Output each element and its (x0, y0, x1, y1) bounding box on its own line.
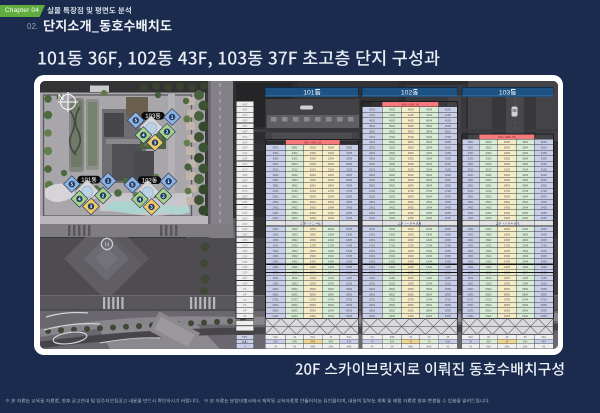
svg-text:2503: 2503 (503, 199, 509, 203)
svg-text:3204: 3204 (522, 161, 528, 165)
svg-text:1605: 1605 (540, 248, 546, 252)
svg-text:3503: 3503 (407, 145, 413, 149)
svg-text:2505: 2505 (540, 199, 546, 203)
svg-text:4005: 4005 (444, 118, 450, 122)
svg-text:2501: 2501 (467, 199, 473, 203)
svg-text:3104: 3104 (426, 167, 432, 171)
svg-text:1101: 1101 (369, 275, 375, 279)
svg-text:1702: 1702 (291, 243, 297, 247)
svg-text:3303: 3303 (309, 156, 315, 160)
svg-text:1603: 1603 (309, 248, 315, 252)
svg-text:2002: 2002 (389, 227, 395, 231)
svg-text:3403: 3403 (503, 151, 509, 155)
svg-text:2601: 2601 (272, 194, 278, 198)
svg-text:0405: 0405 (540, 313, 546, 317)
svg-text:27F: 27F (242, 189, 247, 193)
svg-text:3304: 3304 (426, 156, 432, 160)
svg-text:0602: 0602 (485, 303, 491, 307)
svg-text:2401: 2401 (272, 205, 278, 209)
svg-text:2905: 2905 (346, 178, 352, 182)
svg-text:1901: 1901 (467, 232, 473, 236)
svg-text:3103: 3103 (309, 167, 315, 171)
svg-text:2701: 2701 (467, 189, 473, 193)
svg-text:1005: 1005 (444, 281, 450, 285)
svg-text:3402: 3402 (389, 151, 395, 155)
svg-text:0903: 0903 (309, 286, 315, 290)
svg-text:2404: 2404 (522, 205, 528, 209)
svg-text:4204: 4204 (426, 107, 432, 111)
svg-text:3103: 3103 (503, 167, 509, 171)
svg-text:0604: 0604 (426, 303, 432, 307)
svg-text:0805: 0805 (444, 292, 450, 296)
svg-text:0803: 0803 (503, 292, 509, 296)
svg-text:2603: 2603 (503, 194, 509, 198)
svg-text:1704: 1704 (522, 243, 528, 247)
svg-text:1502: 1502 (485, 254, 491, 258)
svg-text:0402: 0402 (485, 313, 491, 317)
svg-text:3001: 3001 (272, 172, 278, 176)
svg-text:0805: 0805 (346, 292, 352, 296)
svg-text:1501: 1501 (369, 254, 375, 258)
svg-text:84B: 84B (310, 339, 315, 343)
svg-text:2803: 2803 (309, 183, 315, 187)
svg-text:1601: 1601 (369, 248, 375, 252)
svg-text:84B: 84B (328, 339, 333, 343)
svg-text:1802: 1802 (291, 237, 297, 241)
svg-text:3303: 3303 (503, 156, 509, 160)
svg-text:1804: 1804 (522, 237, 528, 241)
svg-text:0804: 0804 (522, 292, 528, 296)
svg-text:3403: 3403 (309, 151, 315, 155)
svg-text:1004: 1004 (522, 281, 528, 285)
svg-text:2705: 2705 (444, 189, 450, 193)
svg-text:1403: 1403 (407, 259, 413, 263)
svg-text:2305: 2305 (540, 210, 546, 214)
svg-text:0902: 0902 (485, 286, 491, 290)
svg-text:3005: 3005 (444, 172, 450, 176)
svg-text:2205: 2205 (444, 216, 450, 220)
svg-text:1705: 1705 (444, 243, 450, 247)
svg-text:3603: 3603 (407, 140, 413, 144)
svg-text:2805: 2805 (540, 183, 546, 187)
svg-text:3504: 3504 (522, 145, 528, 149)
svg-text:3003: 3003 (309, 172, 315, 176)
svg-text:1603: 1603 (503, 248, 509, 252)
svg-text:3302: 3302 (389, 156, 395, 160)
svg-text:2403: 2403 (407, 205, 413, 209)
svg-text:0403: 0403 (503, 313, 509, 317)
svg-text:2005: 2005 (540, 227, 546, 231)
svg-text:3503: 3503 (503, 145, 509, 149)
svg-text:3402: 3402 (485, 151, 491, 155)
svg-text:1902: 1902 (485, 232, 491, 236)
svg-text:0404: 0404 (522, 313, 528, 317)
svg-text:1105: 1105 (346, 275, 352, 279)
svg-text:1703: 1703 (503, 243, 509, 247)
svg-text:2205: 2205 (346, 216, 352, 220)
svg-text:0801: 0801 (272, 292, 278, 296)
svg-text:3205: 3205 (540, 161, 546, 165)
svg-text:2301: 2301 (272, 210, 278, 214)
svg-text:0801: 0801 (369, 292, 375, 296)
svg-text:4201: 4201 (369, 107, 375, 111)
svg-text:2404: 2404 (426, 205, 432, 209)
svg-text:17F: 17F (242, 243, 247, 247)
svg-text:1405: 1405 (346, 259, 352, 263)
svg-text:0601: 0601 (369, 303, 375, 307)
svg-text:3102: 3102 (291, 167, 297, 171)
svg-text:3302: 3302 (291, 156, 297, 160)
svg-text:0904: 0904 (522, 286, 528, 290)
svg-text:2502: 2502 (291, 199, 297, 203)
svg-text:2501: 2501 (272, 199, 278, 203)
svg-text:1602: 1602 (291, 248, 297, 252)
svg-text:3605: 3605 (540, 140, 546, 144)
svg-text:2501: 2501 (369, 199, 375, 203)
svg-text:3401: 3401 (369, 151, 375, 155)
svg-text:1502: 1502 (389, 254, 395, 258)
svg-text:0401: 0401 (467, 313, 473, 317)
svg-text:84A: 84A (273, 335, 278, 339)
svg-text:3202: 3202 (389, 161, 395, 165)
svg-text:2405: 2405 (444, 205, 450, 209)
svg-text:22F: 22F (242, 216, 247, 220)
svg-text:1304: 1304 (426, 265, 432, 269)
svg-text:13F: 13F (242, 265, 247, 269)
svg-text:1003: 1003 (503, 281, 509, 285)
svg-text:0605: 0605 (444, 303, 450, 307)
svg-text:1703: 1703 (407, 243, 413, 247)
svg-text:3403: 3403 (407, 151, 413, 155)
svg-text:2705: 2705 (540, 189, 546, 193)
svg-text:3801: 3801 (369, 129, 375, 133)
svg-text:28F: 28F (242, 183, 247, 187)
svg-text:3503: 3503 (309, 145, 315, 149)
svg-text:0504: 0504 (522, 308, 528, 312)
svg-text:2805: 2805 (444, 183, 450, 187)
svg-text:33F: 33F (242, 156, 247, 160)
svg-text:12F: 12F (242, 270, 247, 274)
svg-text:1904: 1904 (426, 232, 432, 236)
svg-text:1703: 1703 (309, 243, 315, 247)
svg-text:2703: 2703 (309, 189, 315, 193)
svg-text:2202: 2202 (291, 216, 297, 220)
svg-text:2203: 2203 (309, 216, 315, 220)
svg-text:2404: 2404 (327, 205, 333, 209)
svg-text:1804: 1804 (426, 237, 432, 241)
svg-text:2503: 2503 (309, 199, 315, 203)
svg-text:3004: 3004 (522, 172, 528, 176)
svg-text:0602: 0602 (389, 303, 395, 307)
svg-text:2401: 2401 (467, 205, 473, 209)
svg-text:2204: 2204 (426, 216, 432, 220)
svg-text:3005: 3005 (346, 172, 352, 176)
svg-text:0902: 0902 (389, 286, 395, 290)
svg-text:1905: 1905 (444, 232, 450, 236)
svg-text:1805: 1805 (540, 237, 546, 241)
svg-text:2305: 2305 (444, 210, 450, 214)
svg-text:3101: 3101 (467, 167, 473, 171)
svg-text:4101: 4101 (369, 113, 375, 117)
svg-text:3905: 3905 (444, 123, 450, 127)
svg-text:1702: 1702 (389, 243, 395, 247)
svg-text:3601: 3601 (467, 140, 473, 144)
svg-text:3203: 3203 (309, 161, 315, 165)
svg-text:1802: 1802 (485, 237, 491, 241)
svg-text:2502: 2502 (389, 199, 395, 203)
svg-text:1605: 1605 (346, 248, 352, 252)
svg-text:1503: 1503 (407, 254, 413, 258)
svg-text:59A: 59A (328, 344, 333, 348)
svg-text:43F: 43F (242, 102, 247, 106)
svg-text:3304: 3304 (522, 156, 528, 160)
svg-text:3901: 3901 (369, 123, 375, 127)
svg-text:3301: 3301 (272, 156, 278, 160)
svg-text:1503: 1503 (503, 254, 509, 258)
svg-text:1804: 1804 (327, 237, 333, 241)
svg-text:3902: 3902 (389, 123, 395, 127)
svg-text:3104: 3104 (522, 167, 528, 171)
svg-text:0504: 0504 (426, 308, 432, 312)
svg-text:3505: 3505 (540, 145, 546, 149)
svg-text:4202: 4202 (389, 107, 395, 111)
svg-text:1401: 1401 (369, 259, 375, 263)
svg-text:1701: 1701 (467, 243, 473, 247)
svg-text:2805: 2805 (346, 183, 352, 187)
svg-text:1002: 1002 (389, 281, 395, 285)
svg-text:1004: 1004 (426, 281, 432, 285)
svg-text:3404: 3404 (327, 151, 333, 155)
svg-text:2303: 2303 (407, 210, 413, 214)
svg-text:1103: 1103 (407, 275, 413, 279)
svg-text:1104: 1104 (328, 275, 334, 279)
svg-text:2605: 2605 (444, 194, 450, 198)
svg-text:3103: 3103 (407, 167, 413, 171)
svg-text:0503: 0503 (407, 308, 413, 312)
svg-text:102: 102 (400, 89, 412, 96)
svg-text:4203: 4203 (407, 107, 413, 111)
svg-text:4001: 4001 (369, 118, 375, 122)
svg-text:2901: 2901 (272, 178, 278, 182)
svg-text:2905: 2905 (444, 178, 450, 182)
svg-text:0501: 0501 (272, 308, 278, 312)
svg-text:2502: 2502 (485, 199, 491, 203)
svg-text:2302: 2302 (485, 210, 491, 214)
svg-text:0402: 0402 (389, 313, 395, 317)
svg-text:3401: 3401 (272, 151, 278, 155)
svg-text:3703: 3703 (407, 134, 413, 138)
svg-text:15F: 15F (242, 254, 247, 258)
svg-text:1104: 1104 (426, 275, 432, 279)
svg-text:1705: 1705 (346, 243, 352, 247)
svg-text:1503: 1503 (309, 254, 315, 258)
svg-text:1005: 1005 (540, 281, 546, 285)
svg-text:3401: 3401 (467, 151, 473, 155)
svg-text:1801: 1801 (369, 237, 375, 241)
svg-text:1302: 1302 (485, 265, 491, 269)
svg-text:2603: 2603 (407, 194, 413, 198)
svg-text:31F: 31F (242, 167, 247, 171)
svg-text:3202: 3202 (291, 161, 297, 165)
svg-text:1505: 1505 (540, 254, 546, 258)
svg-text:3201: 3201 (272, 161, 278, 165)
svg-text:39F: 39F (242, 124, 247, 128)
svg-text:0505: 0505 (444, 308, 450, 312)
svg-text:30F: 30F (242, 172, 247, 176)
svg-text:1303: 1303 (503, 265, 509, 269)
svg-text:3203: 3203 (407, 161, 413, 165)
svg-text:2004: 2004 (426, 227, 432, 231)
svg-text:1002: 1002 (485, 281, 491, 285)
svg-text:3505: 3505 (346, 145, 352, 149)
svg-text:59A: 59A (504, 344, 509, 348)
svg-text:1904: 1904 (327, 232, 333, 236)
svg-text:2604: 2604 (426, 194, 432, 198)
svg-text:2302: 2302 (291, 210, 297, 214)
svg-text:3201: 3201 (369, 161, 375, 165)
svg-text:2903: 2903 (407, 178, 413, 182)
svg-text:2803: 2803 (407, 183, 413, 187)
svg-text:3802: 3802 (389, 129, 395, 133)
svg-text:2604: 2604 (327, 194, 333, 198)
svg-text:2901: 2901 (467, 178, 473, 182)
svg-text:84B: 84B (346, 344, 351, 348)
svg-text:1801: 1801 (467, 237, 473, 241)
svg-text:2601: 2601 (467, 194, 473, 198)
svg-text:2004: 2004 (522, 227, 528, 231)
svg-text:2402: 2402 (485, 205, 491, 209)
svg-text:2002: 2002 (291, 227, 297, 231)
svg-text:1101: 1101 (272, 275, 278, 279)
svg-text:0403: 0403 (407, 313, 413, 317)
svg-text:0705: 0705 (540, 297, 546, 301)
svg-text:1901: 1901 (272, 232, 278, 236)
svg-text:1702: 1702 (485, 243, 491, 247)
svg-text:1504: 1504 (426, 254, 432, 258)
svg-text:84A: 84A (310, 335, 315, 339)
svg-text:20F: 20F (242, 227, 247, 231)
svg-text:3002: 3002 (485, 172, 491, 176)
svg-text:1305: 1305 (346, 265, 352, 269)
svg-text:2003: 2003 (503, 227, 509, 231)
svg-text:2602: 2602 (389, 194, 395, 198)
svg-text:1902: 1902 (389, 232, 395, 236)
svg-text:1601: 1601 (272, 248, 278, 252)
svg-text:0905: 0905 (444, 286, 450, 290)
svg-text:41F: 41F (242, 113, 247, 117)
svg-text:29F: 29F (242, 178, 247, 182)
svg-text:1701: 1701 (272, 243, 278, 247)
svg-text:3105: 3105 (346, 167, 352, 171)
svg-text:1605: 1605 (444, 248, 450, 252)
svg-text:1803: 1803 (503, 237, 509, 241)
svg-text:1302: 1302 (291, 265, 297, 269)
svg-text:2201: 2201 (272, 216, 278, 220)
svg-text:3701: 3701 (369, 134, 375, 138)
svg-text:2505: 2505 (346, 199, 352, 203)
svg-text:1802: 1802 (389, 237, 395, 241)
svg-text:3303: 3303 (407, 156, 413, 160)
svg-text:2704: 2704 (327, 189, 333, 193)
svg-text:1305: 1305 (444, 265, 450, 269)
svg-text:0804: 0804 (327, 292, 333, 296)
svg-text:2905: 2905 (540, 178, 546, 182)
svg-text:1301: 1301 (272, 265, 278, 269)
svg-text:1105: 1105 (445, 275, 451, 279)
svg-text:3803: 3803 (407, 129, 413, 133)
svg-text:2902: 2902 (389, 178, 395, 182)
svg-text:1304: 1304 (327, 265, 333, 269)
svg-text:2504: 2504 (426, 199, 432, 203)
svg-text:1401: 1401 (272, 259, 278, 263)
svg-text:0903: 0903 (503, 286, 509, 290)
svg-text:3805: 3805 (444, 129, 450, 133)
svg-text:1402: 1402 (291, 259, 297, 263)
svg-text:18F: 18F (242, 238, 247, 242)
svg-text:2005: 2005 (346, 227, 352, 231)
svg-text:0604: 0604 (327, 303, 333, 307)
svg-text:2904: 2904 (327, 178, 333, 182)
svg-text:3201: 3201 (467, 161, 473, 165)
svg-text:1301: 1301 (369, 265, 375, 269)
svg-text:1601: 1601 (467, 248, 473, 252)
svg-text:2904: 2904 (426, 178, 432, 182)
svg-text:1803: 1803 (407, 237, 413, 241)
svg-text:4105: 4105 (444, 113, 450, 117)
svg-text:1504: 1504 (522, 254, 528, 258)
svg-text:0701: 0701 (369, 297, 375, 301)
svg-text:0805: 0805 (540, 292, 546, 296)
svg-text:2504: 2504 (522, 199, 528, 203)
svg-text:4003: 4003 (407, 118, 413, 122)
svg-text:25F: 25F (242, 200, 247, 204)
svg-text:3602: 3602 (485, 140, 491, 144)
svg-text:2203: 2203 (407, 216, 413, 220)
svg-text:2901: 2901 (369, 178, 375, 182)
svg-text:1903: 1903 (503, 232, 509, 236)
svg-text:2405: 2405 (346, 205, 352, 209)
svg-text:3004: 3004 (327, 172, 333, 176)
svg-text:2701: 2701 (272, 189, 278, 193)
svg-text:0904: 0904 (426, 286, 432, 290)
svg-text:26F: 26F (242, 194, 247, 198)
svg-text:3301: 3301 (369, 156, 375, 160)
svg-text:0705: 0705 (346, 297, 352, 301)
svg-text:0802: 0802 (389, 292, 395, 296)
svg-text:2702: 2702 (485, 189, 491, 193)
svg-text:1401: 1401 (467, 259, 473, 263)
svg-text:9F: 9F (242, 286, 246, 290)
svg-text:3204: 3204 (327, 161, 333, 165)
svg-text:3404: 3404 (522, 151, 528, 155)
svg-text:1604: 1604 (426, 248, 432, 252)
svg-text:3603: 3603 (503, 140, 509, 144)
svg-text:0602: 0602 (291, 303, 297, 307)
svg-text:1402: 1402 (485, 259, 491, 263)
svg-text:3605: 3605 (444, 140, 450, 144)
svg-text:1303: 1303 (309, 265, 315, 269)
svg-text:3205: 3205 (444, 161, 450, 165)
svg-text:84A: 84A (426, 344, 431, 348)
svg-text:1103: 1103 (504, 275, 510, 279)
svg-text:2201: 2201 (467, 216, 473, 220)
svg-text:14F: 14F (242, 259, 247, 263)
svg-text:3604: 3604 (426, 140, 432, 144)
svg-text:1003: 1003 (407, 281, 413, 285)
svg-text:0601: 0601 (467, 303, 473, 307)
svg-text:1304: 1304 (522, 265, 528, 269)
svg-text:59A: 59A (468, 335, 473, 339)
